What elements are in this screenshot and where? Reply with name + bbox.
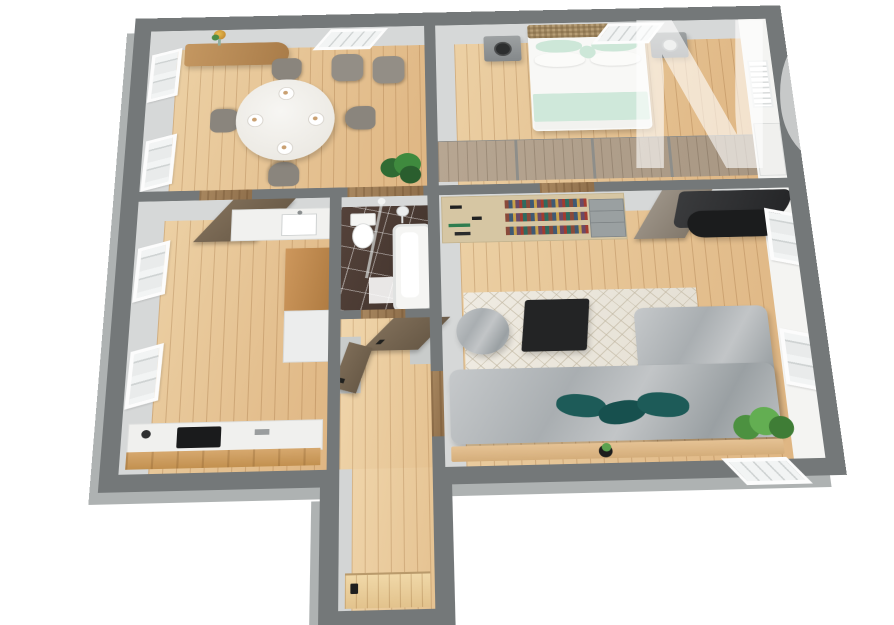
pillow-mint-1 (535, 39, 582, 53)
dining-window-left-2-icon (140, 133, 177, 191)
drawer-unit (588, 198, 626, 237)
vase-plant (211, 30, 228, 47)
book-row-3 (506, 225, 589, 235)
counter-item-icon (255, 429, 270, 435)
kitchen-window-left-1-icon (132, 240, 170, 303)
wall-corridor-east (433, 484, 455, 608)
wall-corridor-west (318, 487, 339, 612)
dining-chair-right (345, 106, 376, 130)
book-row-2 (505, 212, 588, 222)
threshold-hall-living (431, 371, 445, 437)
shelf-deco-green (449, 223, 471, 227)
watermark-logo: NÓ (622, 0, 894, 218)
small-plant-black-pot (598, 443, 616, 459)
kitchen-tall-oak-cabinet (284, 248, 329, 311)
nightstand-left (483, 36, 521, 62)
room-dining (139, 26, 427, 192)
entry-door-handle-icon (350, 583, 358, 594)
wall-unit-bookshelf (441, 193, 628, 244)
dining-plant (380, 153, 425, 186)
shelf-deco-black-1 (450, 205, 462, 209)
dining-chair-bottom (268, 162, 300, 187)
dining-chair-top (271, 58, 302, 81)
shelf-deco-black-2 (472, 217, 482, 221)
wall-corridor-south (318, 608, 456, 625)
armchair-1 (331, 54, 363, 82)
book-row-1 (505, 198, 587, 208)
pillow-white-1 (534, 52, 585, 67)
room-hallway (339, 317, 432, 469)
threshold-kitchen (199, 189, 252, 200)
large-plant (731, 404, 801, 449)
kitchen-sink (281, 214, 317, 236)
bath-mat (369, 277, 393, 304)
room-kitchen (118, 198, 330, 475)
room-corridor (338, 467, 435, 611)
black-coffee-table (521, 299, 589, 352)
room-bathroom (341, 195, 430, 310)
kettle-icon (141, 430, 151, 439)
lamp-dark-icon (494, 42, 512, 56)
floor-plan-canvas: NÓ (0, 0, 894, 625)
kitchen-upper-cabinet (231, 207, 332, 241)
wall-partition-kitchen-bath (327, 197, 342, 470)
kitchen-base-cabinet (283, 310, 331, 363)
threshold-bedroom-living (540, 182, 595, 193)
threshold-dining-hall (347, 186, 423, 197)
shelf-deco-black-3 (455, 232, 471, 236)
kitchen-window-left-2-icon (124, 343, 164, 410)
shower-head-icon (396, 206, 408, 225)
cooktop (176, 426, 221, 448)
threshold-bathroom (361, 309, 406, 319)
armchair-2 (373, 56, 405, 84)
dining-window-left-1-icon (147, 48, 183, 103)
room-living (439, 187, 825, 467)
entry-door (345, 571, 431, 609)
